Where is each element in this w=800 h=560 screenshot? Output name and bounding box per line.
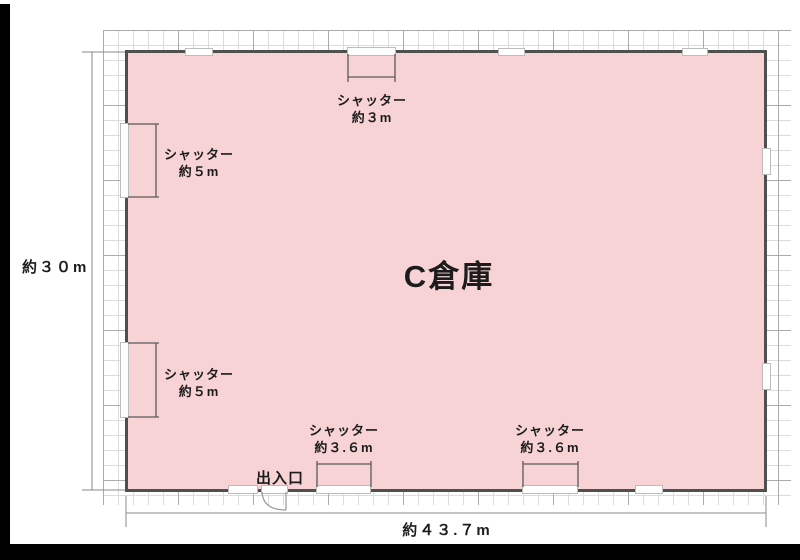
shutter-label-line1: シャッター: [164, 146, 234, 163]
shutter-opening-left-upper: [120, 123, 129, 198]
entrance-label: 出入口: [256, 467, 304, 488]
shutter-label-left-upper: シャッター 約５m: [164, 146, 234, 180]
right-wall-small-opening: [762, 148, 771, 175]
shutter-label-line2: 約５m: [164, 383, 234, 400]
top-wall-small-opening: [498, 48, 525, 56]
shutter-label-line2: 約３m: [337, 109, 407, 126]
shutter-opening-left-lower: [120, 342, 129, 418]
height-dimension-label: 約３０m: [22, 256, 88, 277]
top-wall-small-opening: [682, 48, 708, 56]
width-dimension-label: 約４３.７m: [402, 519, 492, 540]
shutter-label-line1: シャッター: [309, 422, 379, 439]
bottom-wall-small-opening: [635, 485, 663, 494]
shutter-label-bottom-right: シャッター 約３.６m: [515, 422, 585, 456]
bottom-frame-bar: [0, 544, 800, 560]
bottom-wall-small-opening: [228, 485, 258, 494]
shutter-label-line1: シャッター: [515, 422, 585, 439]
shutter-label-line2: 約３.６m: [515, 439, 585, 456]
shutter-opening-bottom-right: [522, 485, 578, 494]
floor-plan: シャッター 約３m シャッター 約５m シャッター 約５m シャッター 約３.６…: [0, 0, 800, 560]
top-wall-small-opening: [185, 48, 213, 56]
right-wall-small-opening: [762, 363, 771, 390]
shutter-opening-bottom-left: [316, 485, 371, 494]
shutter-label-line2: 約５m: [164, 163, 234, 180]
left-frame-bar: [0, 4, 10, 560]
warehouse-title: C倉庫: [404, 251, 494, 296]
shutter-opening-top: [347, 47, 396, 56]
shutter-label-line1: シャッター: [164, 366, 234, 383]
shutter-label-top: シャッター 約３m: [337, 92, 407, 126]
shutter-label-bottom-left: シャッター 約３.６m: [309, 422, 379, 456]
shutter-label-line1: シャッター: [337, 92, 407, 109]
shutter-label-line2: 約３.６m: [309, 439, 379, 456]
shutter-label-left-lower: シャッター 約５m: [164, 366, 234, 400]
